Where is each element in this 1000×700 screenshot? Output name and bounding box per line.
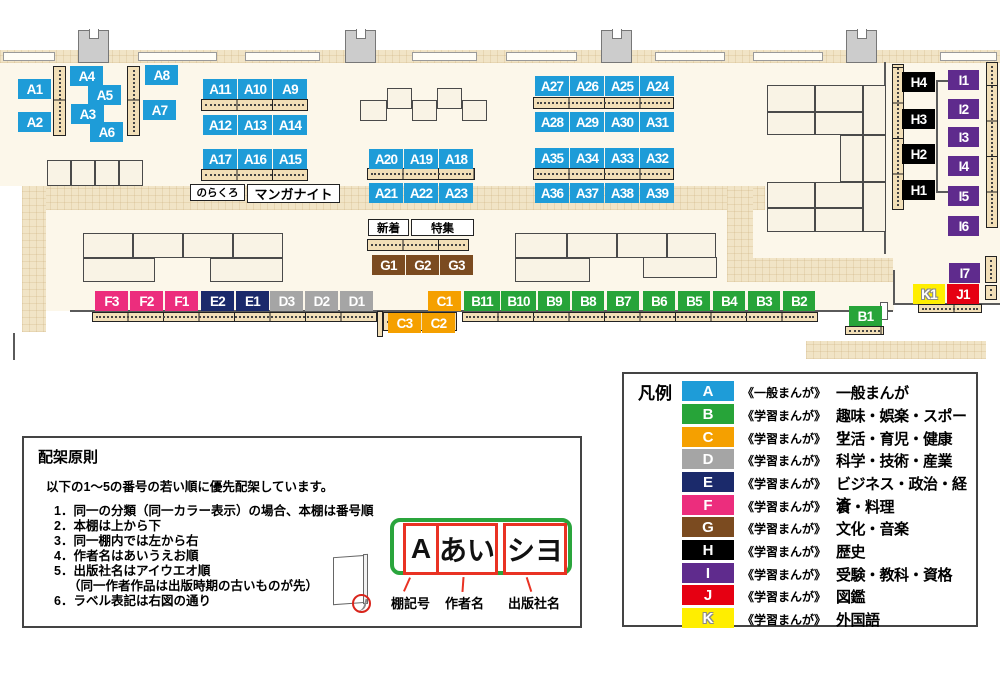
shelf-label-b11: B11	[464, 291, 500, 311]
shelf-label-a29: A29	[570, 112, 604, 132]
bookshelf	[462, 312, 818, 322]
legend-type: 《学習まんが》	[742, 543, 826, 560]
table-block	[210, 258, 283, 282]
pointer-line	[403, 577, 411, 592]
bookshelf	[845, 326, 884, 335]
shelf-label-i2: I2	[948, 99, 979, 119]
shelf-label-c1: C1	[428, 291, 461, 311]
table-block	[47, 160, 71, 186]
shelf-label-i7: I7	[949, 263, 980, 283]
shelf-label-a39: A39	[640, 183, 674, 203]
bookshelf	[985, 285, 997, 300]
shelf-label-a4: A4	[70, 66, 103, 86]
shelf-label-d1: D1	[340, 291, 373, 311]
shelf-label-g2: G2	[406, 255, 439, 275]
shelf-label-h3: H3	[902, 109, 935, 129]
shelf-label-a24: A24	[640, 76, 674, 96]
table-block	[863, 182, 886, 232]
shelf-label-e2: E2	[201, 291, 234, 311]
bookshelf	[127, 66, 140, 136]
legend-chip-j: J	[682, 585, 734, 605]
spine-publisher-kana: シヨ	[503, 523, 567, 575]
shelf-label-a7: A7	[143, 100, 176, 120]
walkway	[22, 186, 46, 332]
table-block	[815, 112, 863, 135]
shelf-label-b6: B6	[643, 291, 675, 311]
caption-publisher: 出版社名	[508, 593, 560, 612]
bookshelf	[53, 66, 66, 136]
shelf-label-g3: G3	[440, 255, 473, 275]
shelf-label-b4: B4	[713, 291, 745, 311]
window	[940, 52, 997, 61]
shelf-label-a15: A15	[273, 149, 307, 169]
label-diagram: A あい シヨ 棚記号 作者名 出版社名	[320, 510, 600, 620]
shelf-label-i6: I6	[948, 216, 979, 236]
table-block	[840, 135, 863, 182]
legend-chip-h: H	[682, 540, 734, 560]
table-block	[767, 112, 815, 135]
shelf-label-a28: A28	[535, 112, 569, 132]
shelf-label-b9: B9	[538, 291, 570, 311]
table-block	[617, 233, 667, 258]
table-block	[863, 85, 886, 135]
shelf-label-c3: C3	[388, 313, 421, 333]
table-block	[462, 100, 487, 121]
shelf-label-a32: A32	[640, 148, 674, 168]
shelf-label-a14: A14	[273, 115, 307, 135]
legend-chip-f: F	[682, 495, 734, 515]
table-block	[360, 100, 387, 121]
shelf-label-a1: A1	[18, 79, 51, 99]
table-block	[233, 233, 283, 258]
legend-chip-a: A	[682, 381, 734, 401]
shelf-label-g1: G1	[372, 255, 405, 275]
legend-chip-g: G	[682, 517, 734, 537]
walkway	[806, 341, 986, 359]
legend-chip-d: D	[682, 449, 734, 469]
shelf-label-a26: A26	[570, 76, 604, 96]
shelf-label-i3: I3	[948, 127, 979, 147]
annotation-manga-night: マンガナイト	[247, 184, 340, 203]
shelf-label-b2: B2	[783, 291, 815, 311]
annotation-new-arrivals: 新着	[368, 219, 409, 236]
shelf-label-b3: B3	[748, 291, 780, 311]
shelf-label-i5: I5	[948, 186, 979, 206]
legend-type: 《学習まんが》	[742, 566, 826, 583]
bookshelf	[201, 99, 308, 111]
table-block	[767, 208, 815, 232]
label-highlight-circle	[352, 594, 371, 613]
legend-panel: 凡例 A 《一般まんが》 一般まんが B 《学習まんが》 趣味・娯楽・スポーツ …	[622, 372, 978, 627]
table-block	[437, 88, 462, 109]
shelf-label-a31: A31	[640, 112, 674, 132]
spine-author-kana: あい	[436, 523, 498, 575]
shelf-label-a25: A25	[605, 76, 639, 96]
shelf-label-h2: H2	[902, 144, 935, 164]
shelf-label-k1: K1	[913, 284, 945, 304]
pointer-line	[526, 577, 533, 592]
table-block	[412, 100, 437, 121]
table-block	[643, 257, 717, 278]
shelf-label-a6: A6	[90, 122, 123, 142]
table-block	[815, 182, 863, 208]
legend-category: 食・料理	[836, 496, 894, 517]
legend-chip-e: E	[682, 472, 734, 492]
connector-line	[936, 80, 938, 193]
shelf-label-a2: A2	[18, 112, 51, 132]
legend-type: 《学習まんが》	[742, 452, 826, 469]
table-block	[815, 208, 863, 232]
principles-title: 配架原則	[38, 446, 98, 467]
pointer-line	[461, 577, 464, 592]
table-block	[667, 233, 716, 258]
shelf-label-f1: F1	[165, 291, 198, 311]
table-block	[815, 85, 863, 112]
window	[506, 52, 577, 61]
legend-type: 《学習まんが》	[742, 430, 826, 447]
legend-category: 文化・音楽	[836, 518, 909, 539]
table-block	[83, 233, 133, 258]
walkway	[727, 258, 893, 282]
window	[655, 52, 725, 61]
shelf-label-f2: F2	[130, 291, 163, 311]
legend-category: 図鑑	[836, 586, 865, 607]
wall	[13, 333, 15, 360]
bookshelf	[533, 97, 674, 109]
shelf-label-a37: A37	[570, 183, 604, 203]
shelf-label-a16: A16	[238, 149, 272, 169]
pillar	[78, 30, 109, 63]
shelf-label-a13: A13	[238, 115, 272, 135]
legend-type: 《学習まんが》	[742, 520, 826, 537]
table-block	[515, 233, 567, 258]
table-block	[183, 233, 233, 258]
legend-category: 外国語	[836, 609, 880, 630]
legend-category: 科学・技術・産業	[836, 450, 952, 471]
shelf-label-a8: A8	[145, 65, 178, 85]
spine-shelf-code: A	[403, 523, 439, 575]
annotation-norakuro: のらくろ	[190, 184, 245, 201]
table-block	[95, 160, 119, 186]
shelf-label-a3: A3	[71, 104, 104, 124]
shelf-label-a27: A27	[535, 76, 569, 96]
shelf-label-h4: H4	[902, 72, 935, 92]
shelf-label-b10: B10	[501, 291, 536, 311]
shelf-label-a5: A5	[88, 85, 121, 105]
shelf-label-a38: A38	[605, 183, 639, 203]
legend-type: 《学習まんが》	[742, 611, 826, 628]
table-block	[863, 135, 886, 182]
table-block	[567, 233, 617, 258]
table-block	[767, 182, 815, 208]
legend-type: 《一般まんが》	[742, 384, 826, 401]
legend-category: 一般まんが	[836, 382, 909, 403]
shelf-label-a35: A35	[535, 148, 569, 168]
bookshelf	[367, 168, 475, 180]
shelf-label-d2: D2	[305, 291, 338, 311]
shelf-label-a21: A21	[369, 183, 403, 203]
shelf-label-a12: A12	[203, 115, 237, 135]
bookshelf	[377, 311, 383, 337]
table-block	[71, 160, 95, 186]
principles-intro: 以下の1～5の番号の若い順に優先配架しています。	[46, 476, 333, 495]
window	[245, 52, 320, 61]
annotation-feature: 特集	[411, 219, 474, 236]
window	[412, 52, 477, 61]
shelf-label-a33: A33	[605, 148, 639, 168]
legend-category: 歴史	[836, 541, 865, 562]
shelf-label-b1: B1	[849, 306, 882, 326]
table-block	[767, 85, 815, 112]
legend-type: 《学習まんが》	[742, 498, 826, 515]
shelf-label-c2: C2	[422, 313, 455, 333]
shelf-label-d3: D3	[270, 291, 303, 311]
shelf-label-i4: I4	[948, 156, 979, 176]
legend-chip-c: C	[682, 427, 734, 447]
shelf-label-a23: A23	[439, 183, 473, 203]
pillar	[601, 30, 632, 63]
bookshelf	[918, 304, 982, 313]
pillar	[345, 30, 376, 63]
spine-label-plate: A あい シヨ	[390, 518, 572, 575]
bookshelf	[367, 239, 469, 251]
principles-rule: 6．ラベル表記は右図の通り	[54, 590, 211, 609]
table-block	[83, 258, 155, 282]
shelf-label-a22: A22	[404, 183, 438, 203]
legend-chip-i: I	[682, 563, 734, 583]
legend-type: 《学習まんが》	[742, 475, 826, 492]
shelf-label-i1: I1	[948, 70, 979, 90]
shelf-label-j1: J1	[947, 284, 979, 304]
window	[3, 52, 55, 61]
shelf-label-a17: A17	[203, 149, 237, 169]
legend-category: 生活・育児・健康	[836, 428, 952, 449]
shelf-label-a9: A9	[273, 79, 307, 99]
shelf-label-a20: A20	[369, 149, 403, 169]
bookshelf	[533, 168, 674, 180]
legend-chip-k: K	[682, 608, 734, 628]
shelf-label-a36: A36	[535, 183, 569, 203]
bookshelf	[985, 256, 997, 283]
legend-type: 《学習まんが》	[742, 407, 826, 424]
shelf-label-f3: F3	[95, 291, 128, 311]
shelf-label-h1: H1	[902, 180, 935, 200]
connector-line	[936, 191, 948, 193]
shelf-label-e1: E1	[236, 291, 269, 311]
bookshelf	[986, 62, 998, 228]
bookshelf	[201, 169, 308, 181]
shelf-label-a11: A11	[203, 79, 237, 99]
pillar	[846, 30, 877, 63]
window	[753, 52, 823, 61]
table-block	[515, 258, 590, 282]
table-block	[133, 233, 183, 258]
shelf-label-a34: A34	[570, 148, 604, 168]
legend-chip-b: B	[682, 404, 734, 424]
shelf-label-b8: B8	[572, 291, 604, 311]
window	[138, 52, 217, 61]
shelf-label-a10: A10	[238, 79, 272, 99]
shelf-label-a19: A19	[404, 149, 438, 169]
table-block	[119, 160, 143, 186]
legend-category: 受験・教科・資格	[836, 564, 952, 585]
table-block	[387, 88, 412, 109]
floor-cutout	[0, 186, 22, 332]
shelf-label-a30: A30	[605, 112, 639, 132]
shelf-label-b5: B5	[678, 291, 710, 311]
connector-line	[936, 80, 948, 82]
wall	[893, 270, 895, 304]
caption-shelf-code: 棚記号	[391, 593, 430, 612]
shelf-label-b7: B7	[607, 291, 639, 311]
bookshelf	[92, 312, 377, 322]
shelf-label-a18: A18	[439, 149, 473, 169]
caption-author: 作者名	[445, 593, 484, 612]
legend-type: 《学習まんが》	[742, 588, 826, 605]
